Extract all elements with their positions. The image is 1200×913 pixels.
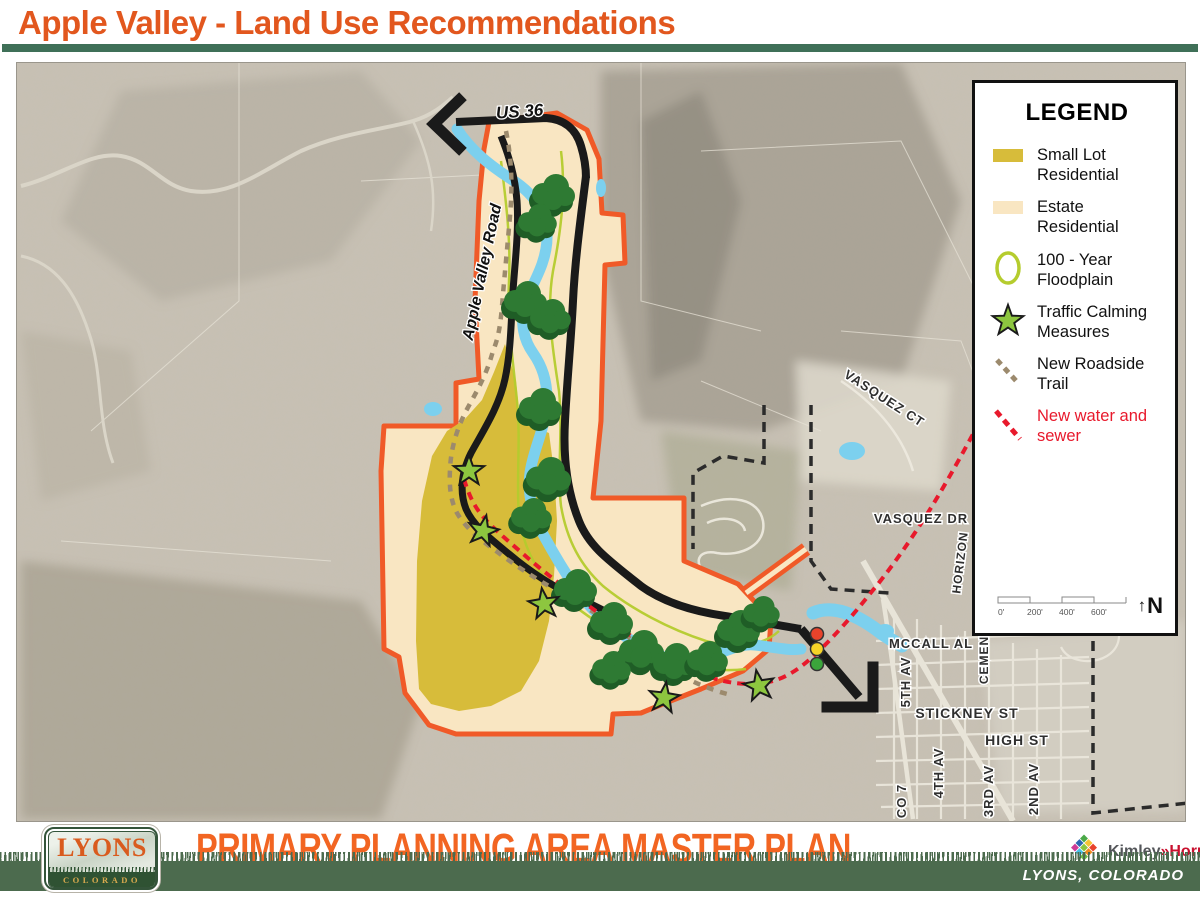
page-title: Apple Valley - Land Use Recommendations <box>18 4 675 42</box>
label-5th-av: 5TH AV <box>898 657 913 708</box>
legend-label: Floodplain <box>1037 270 1113 290</box>
lyons-logo-inner: LYONS COLORADO <box>48 831 156 888</box>
traffic-calming-star-icon <box>989 302 1027 342</box>
svg-text:400': 400' <box>1059 607 1075 617</box>
label-stickney-st: STICKNEY ST <box>915 705 1018 721</box>
legend: LEGEND Small LotResidential Estate Resid… <box>972 80 1178 636</box>
north-arrow-icon: ↑ <box>1138 596 1147 616</box>
north-label: N <box>1147 593 1163 619</box>
label-cemen: CEMEN <box>977 636 991 684</box>
roadside-trail-dash-icon <box>989 354 1027 394</box>
legend-title: LEGEND <box>989 99 1165 127</box>
label-high-st: HIGH ST <box>985 732 1049 748</box>
legend-label: Trail <box>1037 374 1144 394</box>
label-4th-av: 4TH AV <box>931 748 946 799</box>
svg-text:200': 200' <box>1027 607 1043 617</box>
legend-label: Small Lot <box>1037 145 1119 165</box>
label-co-7: CO 7 <box>894 784 909 818</box>
legend-label: 100 - Year <box>1037 250 1113 270</box>
north-indicator: ↑N <box>1138 593 1163 619</box>
legend-label: New water and <box>1037 406 1147 426</box>
master-plan-map: US 36 Apple Valley Road VASQUEZ CT VASQU… <box>16 62 1186 822</box>
svg-text:600': 600' <box>1091 607 1107 617</box>
scale-and-north: 0' 200' 400' 600' ↑N <box>995 593 1163 619</box>
footer-location-text: LYONS, COLORADO <box>1023 867 1184 884</box>
label-us36: US 36 <box>495 100 544 122</box>
label-2nd-av: 2ND AV <box>1026 763 1041 815</box>
water-sewer-dash-icon <box>989 406 1027 446</box>
scale-bar: 0' 200' 400' 600' <box>995 593 1131 619</box>
lyons-logo: LYONS COLORADO <box>44 827 158 890</box>
legend-label: sewer <box>1037 426 1147 446</box>
page: { "header": { "title": "Apple Valley - L… <box>0 0 1200 913</box>
legend-label: Measures <box>1037 322 1147 342</box>
legend-item-trail: New RoadsideTrail <box>989 354 1165 394</box>
legend-label: Residential <box>1037 165 1119 185</box>
legend-label: Traffic Calming <box>1037 302 1147 322</box>
legend-item-water-sewer: New water andsewer <box>989 406 1165 446</box>
lyons-logo-subtitle: COLORADO <box>49 872 155 887</box>
floodplain-ellipse-icon <box>989 250 1027 290</box>
label-vasquez-dr: VASQUEZ DR <box>874 511 968 526</box>
legend-item-estate: Estate Residential <box>989 197 1165 237</box>
estate-swatch <box>989 197 1027 237</box>
header-divider-bar <box>2 44 1198 52</box>
small-lot-swatch <box>989 145 1027 185</box>
label-3rd-av: 3RD AV <box>981 765 996 817</box>
footer-grass-band: LYONS, COLORADO <box>0 861 1200 891</box>
lyons-logo-title: LYONS <box>49 833 155 863</box>
svg-text:0': 0' <box>998 607 1005 617</box>
legend-item-small-lot: Small LotResidential <box>989 145 1165 185</box>
label-mccall-al: MCCALL AL <box>889 636 973 651</box>
legend-label: Estate Residential <box>1037 197 1165 237</box>
legend-item-floodplain: 100 - YearFloodplain <box>989 250 1165 290</box>
traffic-signal-icon <box>811 628 824 671</box>
legend-item-traffic-calming: Traffic CalmingMeasures <box>989 302 1165 342</box>
legend-label: New Roadside <box>1037 354 1144 374</box>
